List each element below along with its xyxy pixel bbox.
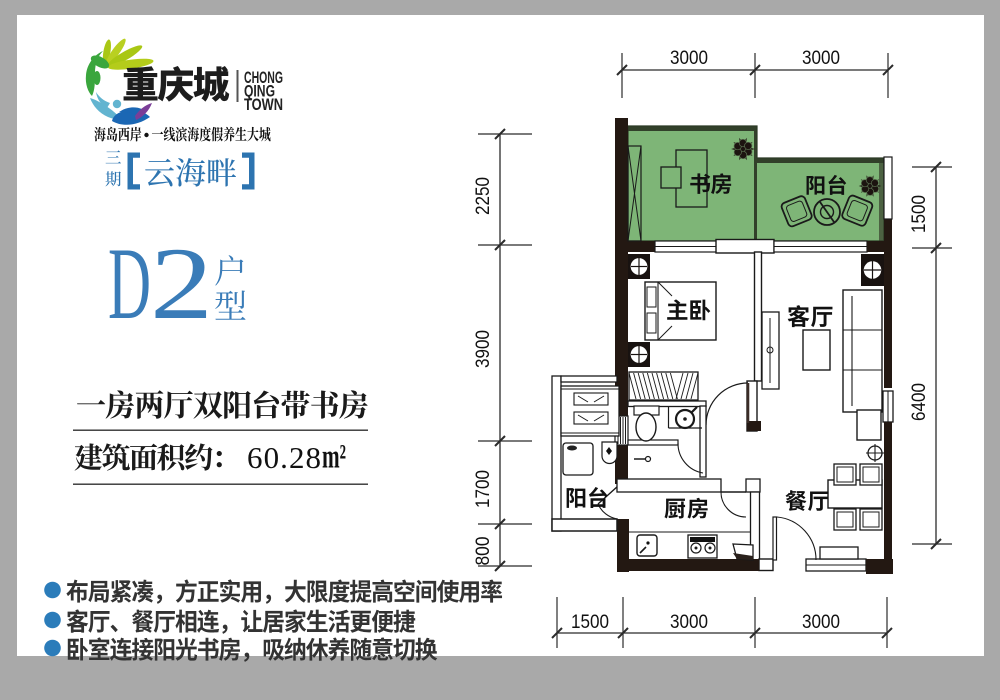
svg-text:60.28: 60.28: [247, 440, 321, 475]
svg-text:3000: 3000: [670, 48, 708, 69]
svg-text:D: D: [108, 227, 151, 341]
svg-text:800: 800: [473, 537, 494, 566]
svg-text:1500: 1500: [909, 195, 930, 233]
svg-text:3000: 3000: [802, 612, 840, 633]
svg-text:1500: 1500: [571, 612, 609, 633]
svg-text:3900: 3900: [473, 330, 494, 368]
svg-text:3000: 3000: [802, 48, 840, 69]
svg-text:2: 2: [150, 227, 213, 341]
svg-text:6400: 6400: [909, 383, 930, 421]
svg-text:m²: m²: [322, 439, 346, 476]
svg-text:2250: 2250: [473, 177, 494, 215]
svg-text:TOWN: TOWN: [244, 96, 283, 114]
svg-text:3000: 3000: [670, 612, 708, 633]
svg-text:1700: 1700: [473, 470, 494, 508]
